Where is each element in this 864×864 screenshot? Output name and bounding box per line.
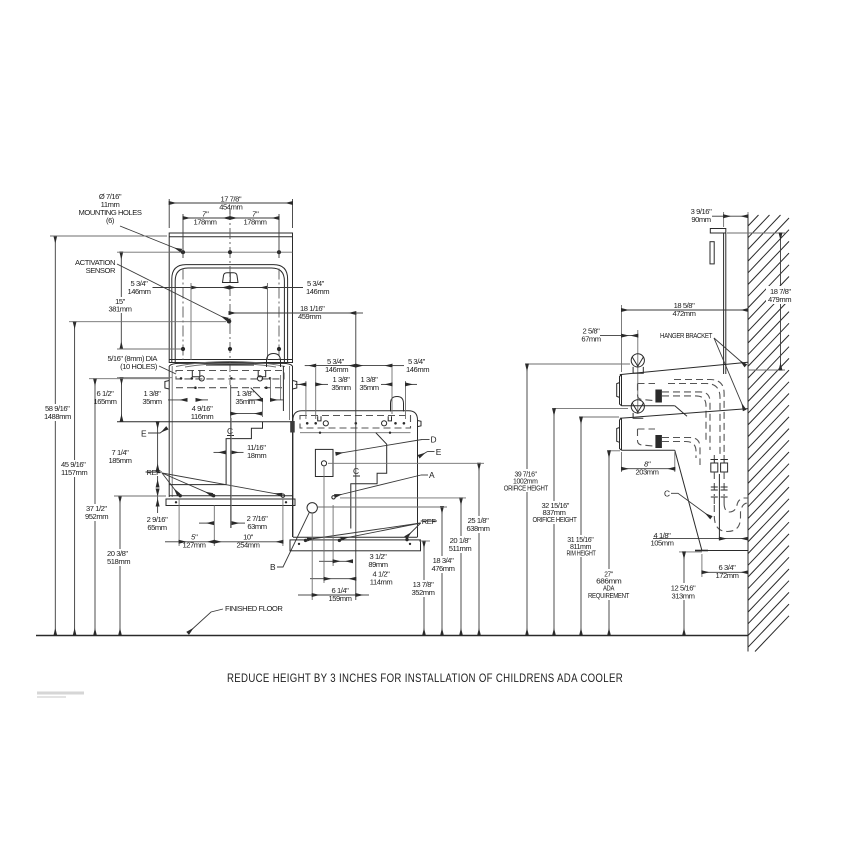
svg-text:D: D xyxy=(431,435,437,445)
svg-text:REF: REF xyxy=(422,517,437,526)
svg-text:65mm: 65mm xyxy=(147,523,166,532)
svg-text:E: E xyxy=(141,429,147,439)
svg-text:35mm: 35mm xyxy=(359,383,378,392)
svg-text:63mm: 63mm xyxy=(247,522,266,531)
svg-text:146mm: 146mm xyxy=(127,287,150,296)
svg-text:472mm: 472mm xyxy=(672,309,695,318)
svg-text:476mm: 476mm xyxy=(431,564,454,573)
svg-text:454mm: 454mm xyxy=(219,203,242,212)
svg-text:313mm: 313mm xyxy=(671,592,694,601)
svg-text:ORIFICE HEIGHT: ORIFICE HEIGHT xyxy=(504,484,549,493)
svg-text:FINISHED FLOOR: FINISHED FLOOR xyxy=(225,604,283,613)
svg-text:127mm: 127mm xyxy=(182,541,205,550)
svg-text:114mm: 114mm xyxy=(370,578,393,587)
svg-text:A: A xyxy=(429,470,435,480)
svg-text:381mm: 381mm xyxy=(108,305,131,314)
svg-text:35mm: 35mm xyxy=(142,397,161,406)
svg-text:REQUIREMENT: REQUIREMENT xyxy=(588,591,630,600)
svg-text:146mm: 146mm xyxy=(306,287,329,296)
svg-text:35mm: 35mm xyxy=(331,383,350,392)
svg-text:159mm: 159mm xyxy=(328,594,351,603)
svg-text:479mm: 479mm xyxy=(768,295,791,304)
svg-text:105mm: 105mm xyxy=(650,539,673,548)
svg-text:67mm: 67mm xyxy=(581,335,600,344)
svg-text:638mm: 638mm xyxy=(466,524,489,533)
svg-text:1157mm: 1157mm xyxy=(61,468,87,477)
svg-text:1488mm: 1488mm xyxy=(44,412,71,421)
svg-text:146mm: 146mm xyxy=(406,365,429,374)
svg-text:(10 HOLES): (10 HOLES) xyxy=(120,362,158,371)
svg-text:C: C xyxy=(227,426,233,436)
svg-text:(6): (6) xyxy=(106,216,115,225)
svg-text:116mm: 116mm xyxy=(191,412,214,421)
svg-text:203mm: 203mm xyxy=(635,468,658,477)
svg-text:ORIFICE HEIGHT: ORIFICE HEIGHT xyxy=(533,515,578,524)
svg-text:146mm: 146mm xyxy=(325,365,348,374)
svg-text:165mm: 165mm xyxy=(93,397,116,406)
svg-text:518mm: 518mm xyxy=(107,557,130,566)
svg-text:B: B xyxy=(270,562,276,572)
svg-text:352mm: 352mm xyxy=(411,588,434,597)
svg-text:HANGER BRACKET: HANGER BRACKET xyxy=(660,331,713,340)
svg-text:185mm: 185mm xyxy=(108,456,131,465)
svg-text:RIM HEIGHT: RIM HEIGHT xyxy=(567,549,597,558)
svg-text:REF: REF xyxy=(147,468,162,477)
svg-text:952mm: 952mm xyxy=(85,512,108,521)
svg-text:REDUCE HEIGHT BY 3 INCHES FOR: REDUCE HEIGHT BY 3 INCHES FOR INSTALLATI… xyxy=(227,672,623,685)
svg-text:511mm: 511mm xyxy=(449,544,472,553)
svg-text:C: C xyxy=(664,489,670,499)
svg-text:E: E xyxy=(436,447,442,457)
svg-text:18mm: 18mm xyxy=(247,451,266,460)
svg-text:SENSOR: SENSOR xyxy=(86,266,116,275)
svg-text:254mm: 254mm xyxy=(236,541,259,550)
svg-text:90mm: 90mm xyxy=(691,215,710,224)
svg-text:89mm: 89mm xyxy=(368,560,387,569)
svg-text:178mm: 178mm xyxy=(193,218,216,227)
svg-text:459mm: 459mm xyxy=(298,312,321,321)
svg-text:172mm: 172mm xyxy=(715,571,738,580)
svg-text:178mm: 178mm xyxy=(243,218,266,227)
svg-text:35mm: 35mm xyxy=(235,397,254,406)
